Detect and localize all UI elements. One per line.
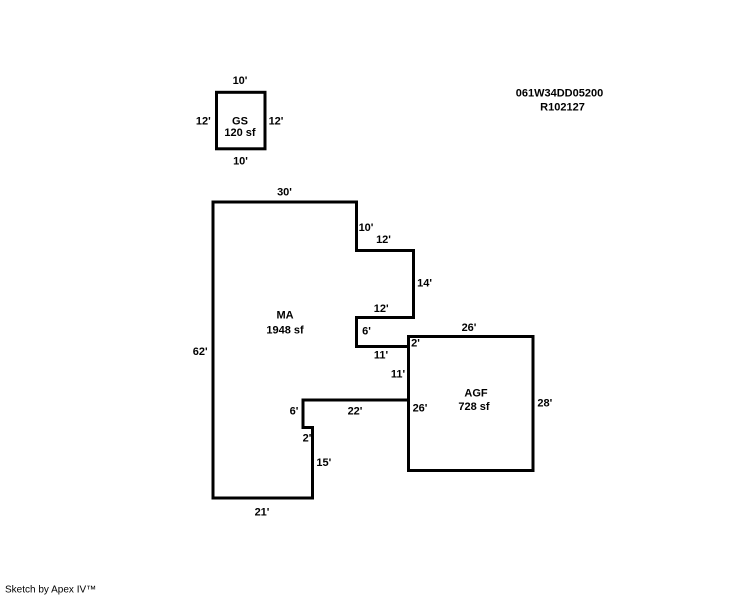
svg-text:Sketch by Apex IV™: Sketch by Apex IV™	[5, 584, 96, 595]
svg-text:GS: GS	[232, 115, 248, 127]
svg-text:10': 10'	[233, 75, 248, 87]
svg-text:12': 12'	[269, 115, 284, 127]
svg-text:120 sf: 120 sf	[224, 127, 256, 139]
svg-text:21': 21'	[255, 506, 270, 518]
svg-text:28': 28'	[537, 397, 552, 409]
svg-text:10': 10'	[359, 222, 374, 234]
svg-text:R102127: R102127	[540, 102, 585, 114]
svg-text:2': 2'	[411, 337, 420, 349]
svg-text:6': 6'	[362, 326, 371, 338]
svg-text:12': 12'	[196, 115, 211, 127]
svg-text:1948 sf: 1948 sf	[266, 325, 304, 337]
svg-text:2': 2'	[303, 432, 312, 444]
svg-text:22': 22'	[348, 406, 363, 418]
svg-text:12': 12'	[376, 234, 391, 246]
svg-text:728 sf: 728 sf	[458, 401, 490, 413]
svg-text:061W34DD05200: 061W34DD05200	[516, 88, 603, 100]
svg-text:11': 11'	[374, 350, 389, 362]
svg-text:6': 6'	[290, 406, 299, 418]
svg-text:11': 11'	[391, 369, 406, 381]
svg-text:AGF: AGF	[464, 388, 488, 400]
svg-text:14': 14'	[417, 278, 432, 290]
svg-text:15': 15'	[316, 457, 331, 469]
svg-text:62': 62'	[193, 346, 208, 358]
svg-text:26': 26'	[462, 322, 477, 334]
svg-text:26': 26'	[413, 403, 428, 415]
svg-text:MA: MA	[276, 310, 293, 322]
svg-text:12': 12'	[374, 303, 389, 315]
svg-text:30': 30'	[277, 187, 292, 199]
svg-text:10': 10'	[233, 155, 248, 167]
